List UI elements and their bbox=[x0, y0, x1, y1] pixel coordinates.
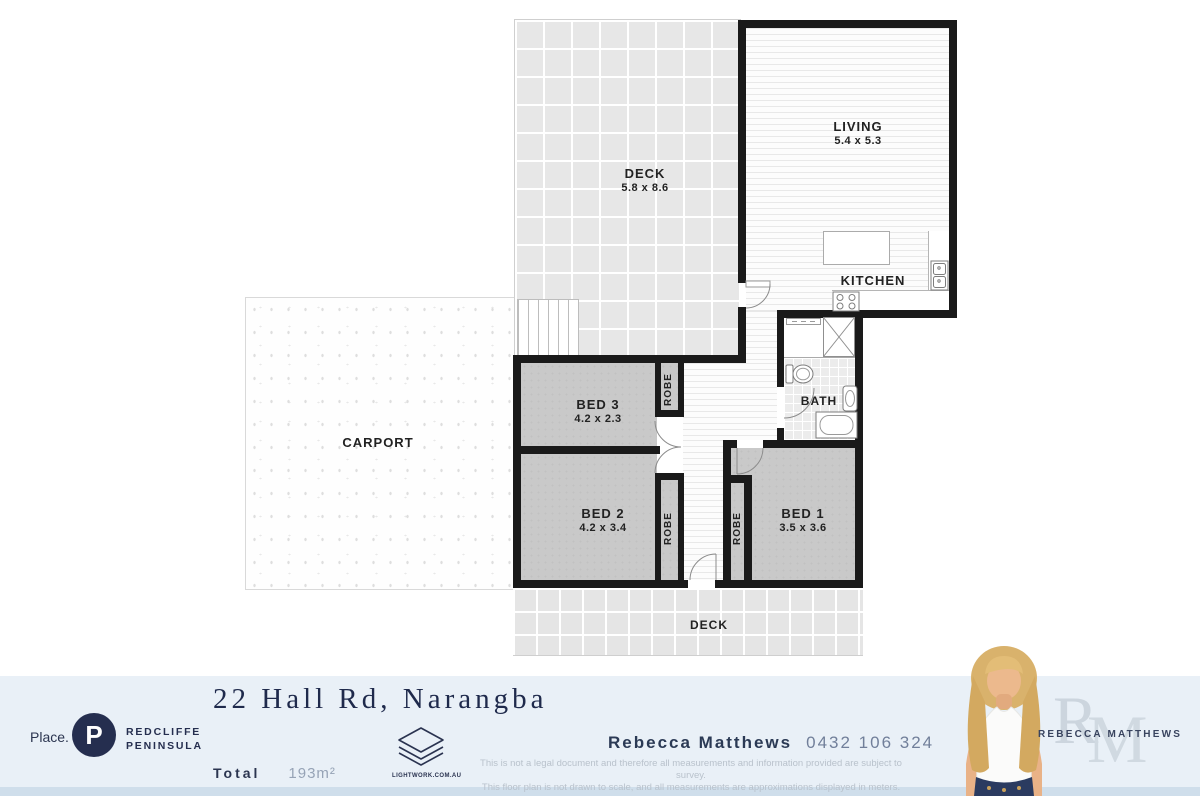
kitchen-sink-icon bbox=[931, 261, 948, 290]
disclaimer: This is not a legal document and therefo… bbox=[475, 758, 907, 794]
label-robe-bed3: ROBE bbox=[663, 370, 674, 410]
neck bbox=[996, 694, 1012, 709]
linen-x-icon bbox=[824, 318, 855, 357]
floorplan: DECK 5.8 x 8.6 LIVING 5.4 x 5.3 KITCHEN … bbox=[0, 0, 1200, 676]
label-bed2: BED 2 4.2 x 3.4 bbox=[579, 506, 626, 534]
bathtub-icon bbox=[816, 412, 857, 438]
laundry-bench-icon bbox=[787, 319, 821, 325]
fixtures-overlay bbox=[0, 0, 1200, 676]
label-bed3: BED 3 4.2 x 2.3 bbox=[574, 397, 621, 425]
place-label: Place. bbox=[30, 729, 69, 745]
total-label: Total bbox=[213, 765, 260, 781]
stove-icon bbox=[833, 292, 859, 311]
label-kitchen: KITCHEN bbox=[841, 273, 906, 288]
agent-photo bbox=[933, 644, 1078, 796]
layers-icon bbox=[396, 726, 446, 766]
lightwork-url: LIGHTWORK.COM.AU bbox=[392, 773, 450, 779]
label-deck-bottom: DECK bbox=[690, 618, 728, 632]
brand-line2: PENINSULA bbox=[126, 739, 203, 753]
agent-contact: Rebecca Matthews0432 106 324 bbox=[608, 733, 934, 753]
page-title: 22 Hall Rd, Narangba bbox=[213, 683, 548, 716]
place-logo-icon: P bbox=[72, 713, 116, 757]
label-carport: CARPORT bbox=[342, 435, 413, 450]
label-robe-bed1: ROBE bbox=[732, 507, 743, 551]
disclaimer-line2: This floor plan is not drawn to scale, a… bbox=[475, 782, 907, 794]
label-bed1: BED 1 3.5 x 3.6 bbox=[779, 506, 826, 534]
label-living: LIVING 5.4 x 5.3 bbox=[833, 119, 882, 147]
bath-sink-icon bbox=[843, 386, 857, 411]
agent-phone: 0432 106 324 bbox=[806, 733, 934, 752]
disclaimer-line1: This is not a legal document and therefo… bbox=[475, 758, 907, 782]
agent-name: Rebecca Matthews bbox=[608, 733, 792, 752]
toilet-icon bbox=[786, 365, 813, 383]
total-area: Total193m² bbox=[213, 765, 336, 783]
label-robe-bed2: ROBE bbox=[663, 507, 674, 551]
floorplan-page: DECK 5.8 x 8.6 LIVING 5.4 x 5.3 KITCHEN … bbox=[0, 0, 1200, 796]
total-value: 193m² bbox=[288, 765, 336, 782]
lightwork-logo: LIGHTWORK.COM.AU bbox=[392, 726, 450, 779]
brand-line1: REDCLIFFE bbox=[126, 725, 203, 739]
place-logo-letter: P bbox=[85, 720, 102, 751]
label-bath: BATH bbox=[801, 394, 837, 408]
agent-card-name: REBECCA MATTHEWS bbox=[1038, 729, 1182, 740]
brand-name: REDCLIFFE PENINSULA bbox=[126, 725, 203, 753]
label-deck-top: DECK 5.8 x 8.6 bbox=[621, 166, 668, 194]
